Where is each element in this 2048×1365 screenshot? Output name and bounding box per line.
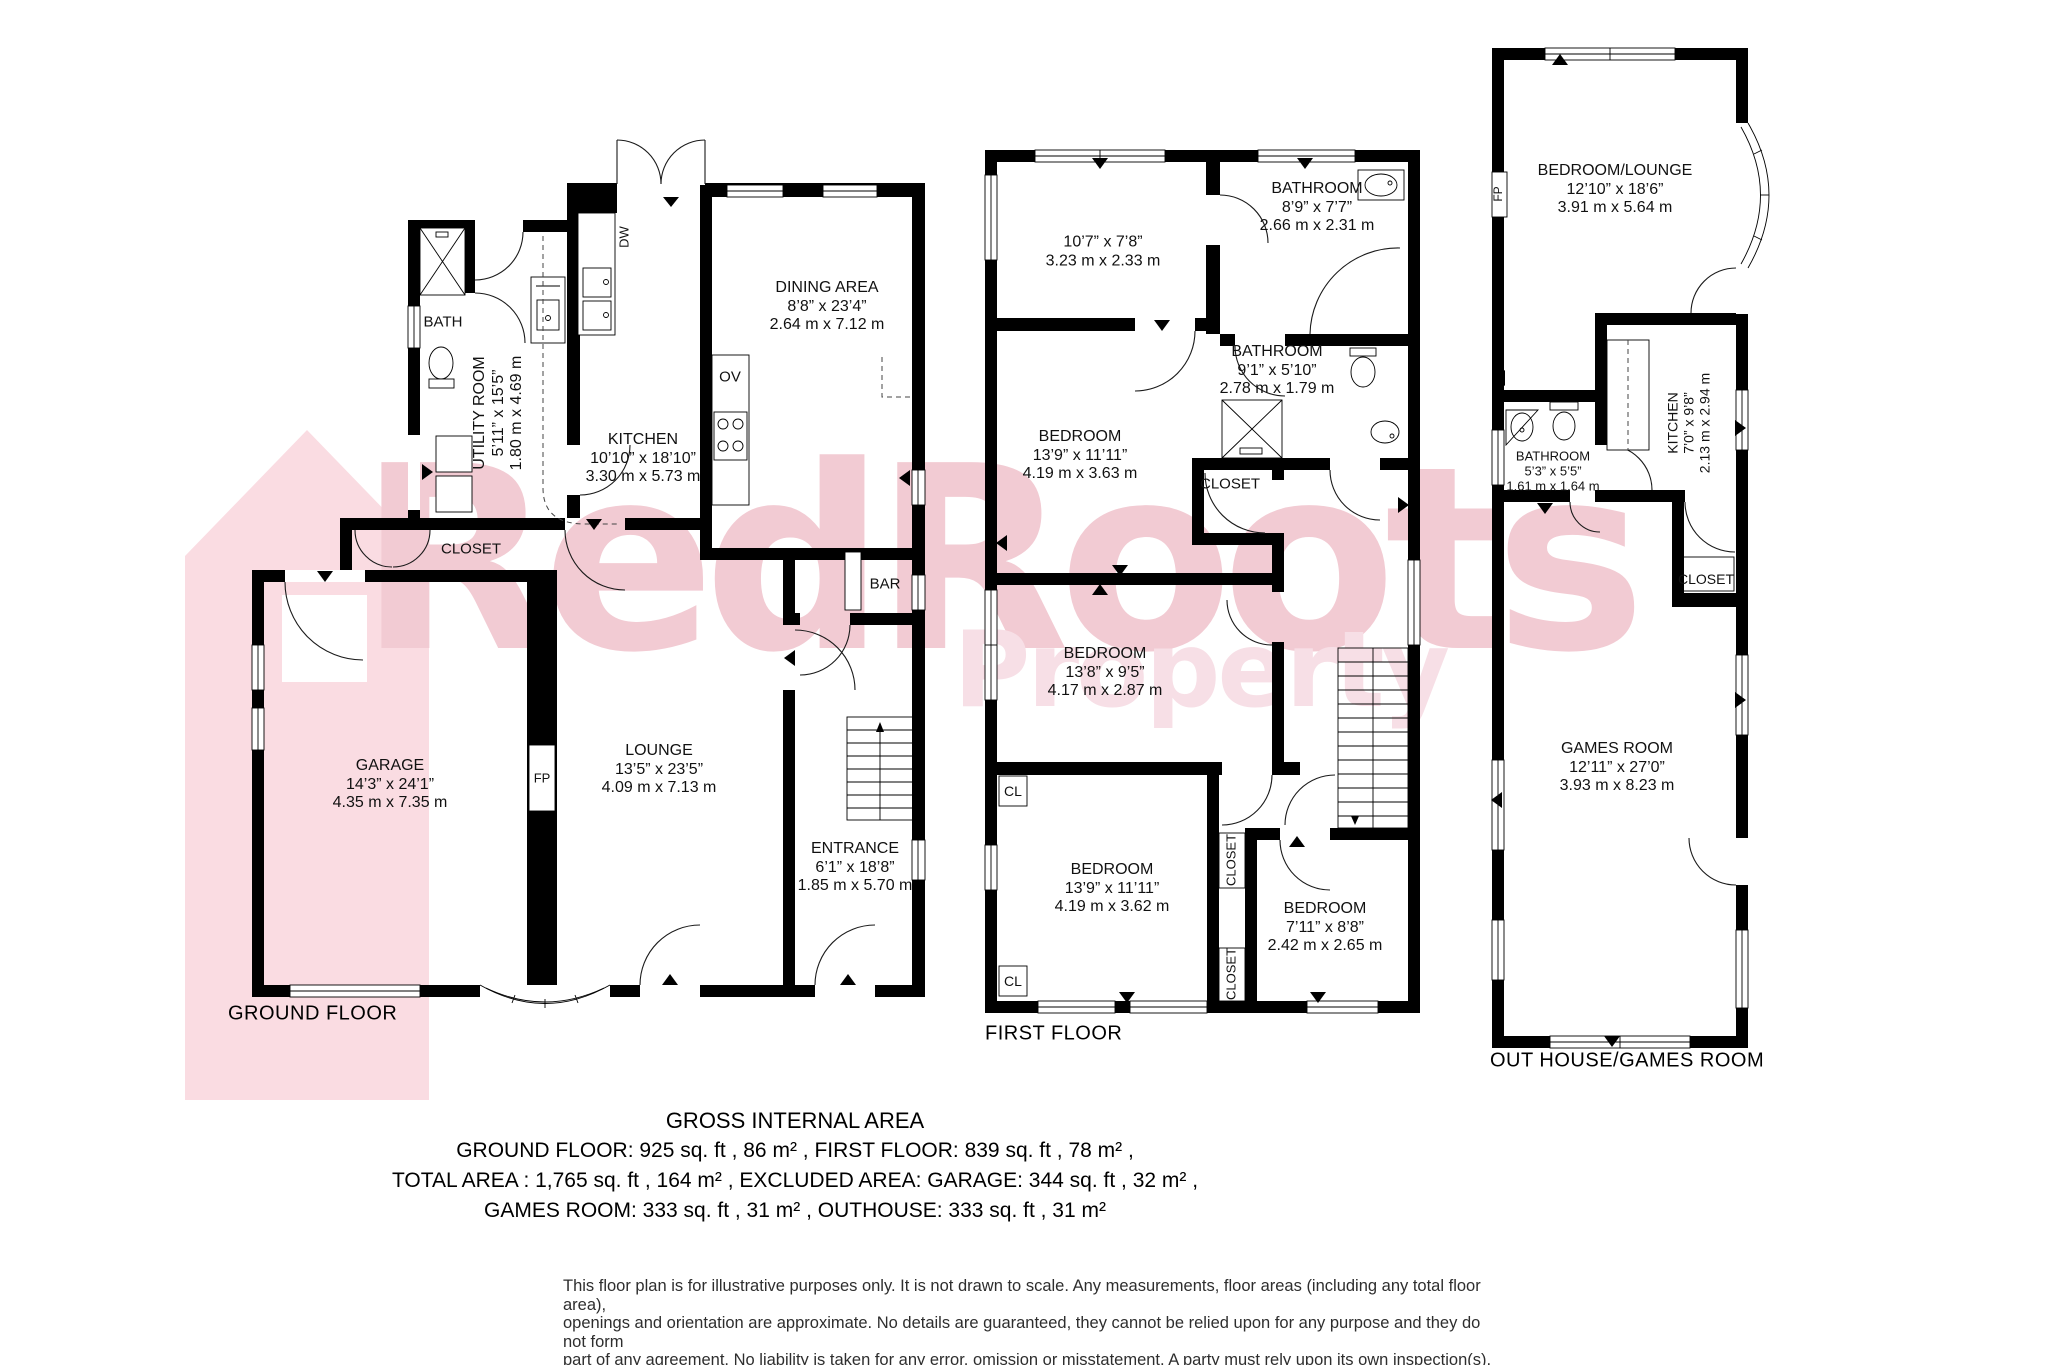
room-label-bedroom2: BEDROOM 13’8” x 9’5” 4.17 m x 2.87 m	[1048, 645, 1163, 701]
room-label-kitchen-outhouse: KITCHEN 7’0” x 9’8” 2.13 m x 2.94 m	[1665, 373, 1714, 473]
floor-label-first: FIRST FLOOR	[985, 1023, 1122, 1046]
room-label-first-room: 10’7” x 7’8” 3.23 m x 2.33 m	[1046, 233, 1161, 270]
room-label-bar: BAR	[870, 575, 901, 592]
stairs	[847, 717, 913, 820]
kitchen-counter	[578, 213, 615, 335]
watermark-sub-text: Property	[953, 609, 1448, 731]
room-label-bedroom-lounge: BEDROOM/LOUNGE 12’10” x 18’6” 3.91 m x 5…	[1538, 162, 1693, 218]
room-label-bedroom4: BEDROOM 7’11” x 8’8” 2.42 m x 2.65 m	[1268, 900, 1383, 956]
room-label-closet-top: CLOSET	[1223, 834, 1238, 886]
room-label-kitchen: KITCHEN 10’10” x 18’10” 3.30 m x 5.73 m	[586, 431, 701, 487]
room-label-bedroom3: BEDROOM 13’9” x 11’11” 4.19 m x 3.62 m	[1055, 861, 1170, 917]
room-label-bathroom-outhouse: BATHROOM 5’3” x 5’5” 1.61 m x 1.64 m	[1506, 448, 1599, 493]
room-label-bathroom1: BATHROOM 8’9” x 7’7” 2.66 m x 2.31 m	[1260, 180, 1375, 236]
room-label-closet-bottom: CLOSET	[1223, 948, 1238, 1000]
label-fireplace-ground: FP	[534, 770, 551, 785]
label-oven: OV	[719, 368, 741, 385]
kitchen-counter	[1607, 340, 1649, 450]
corner-sink	[1371, 421, 1399, 443]
label-cl1: CL	[1004, 783, 1022, 799]
room-label-dining: DINING AREA 8’8” x 23’4” 2.64 m x 7.12 m	[770, 279, 885, 335]
room-label-garage: GARAGE 14’3” x 24’1” 4.35 m x 7.35 m	[333, 757, 448, 813]
disclaimer-text: This floor plan is for illustrative purp…	[563, 1277, 1503, 1365]
utility-sink	[531, 277, 565, 343]
label-cl2: CL	[1004, 973, 1022, 989]
floor-label-outhouse: OUT HOUSE/GAMES ROOM	[1490, 1050, 1764, 1073]
label-dishwasher: DW	[616, 226, 631, 248]
floorplan-page: RedRoots Property	[0, 0, 2048, 1365]
room-label-bath: BATH	[424, 313, 463, 330]
area-summary-line: TOTAL AREA : 1,765 sq. ft , 164 m² , EXC…	[392, 1166, 1198, 1196]
room-label-closet-hall: CLOSET	[1200, 475, 1260, 492]
area-summary-line: GROUND FLOOR: 925 sq. ft , 86 m² , FIRST…	[392, 1136, 1198, 1166]
area-summary: GROSS INTERNAL AREA GROUND FLOOR: 925 sq…	[392, 1106, 1198, 1226]
label-fireplace-outhouse: FP	[1492, 186, 1506, 201]
room-label-lounge: LOUNGE 13’5” x 23’5” 4.09 m x 7.13 m	[602, 742, 717, 798]
room-label-utility: UTILITY ROOM 5’11” x 15’5” 1.80 m x 4.69…	[471, 356, 527, 471]
room-label-bedroom1: BEDROOM 13’9” x 11’11” 4.19 m x 3.63 m	[1023, 428, 1138, 484]
room-label-closet-ground: CLOSET	[441, 540, 501, 557]
shower	[420, 228, 465, 295]
room-label-games-room: GAMES ROOM 12’11” x 27’0” 3.93 m x 8.23 …	[1560, 740, 1675, 796]
floor-label-ground: GROUND FLOOR	[228, 1003, 397, 1026]
area-summary-title: GROSS INTERNAL AREA	[392, 1106, 1198, 1136]
toilet	[429, 347, 454, 388]
bar-counter	[845, 552, 861, 610]
toilet	[1350, 348, 1376, 387]
room-label-closet-outhouse: CLOSET	[1678, 571, 1734, 587]
area-summary-line: GAMES ROOM: 333 sq. ft , 31 m² , OUTHOUS…	[392, 1196, 1198, 1226]
room-label-entrance: ENTRANCE 6’1” x 18’8” 1.85 m x 5.70 m	[798, 840, 913, 896]
room-label-bathroom2: BATHROOM 9’1” x 5’10” 2.78 m x 1.79 m	[1220, 343, 1335, 399]
shower	[1222, 400, 1282, 458]
